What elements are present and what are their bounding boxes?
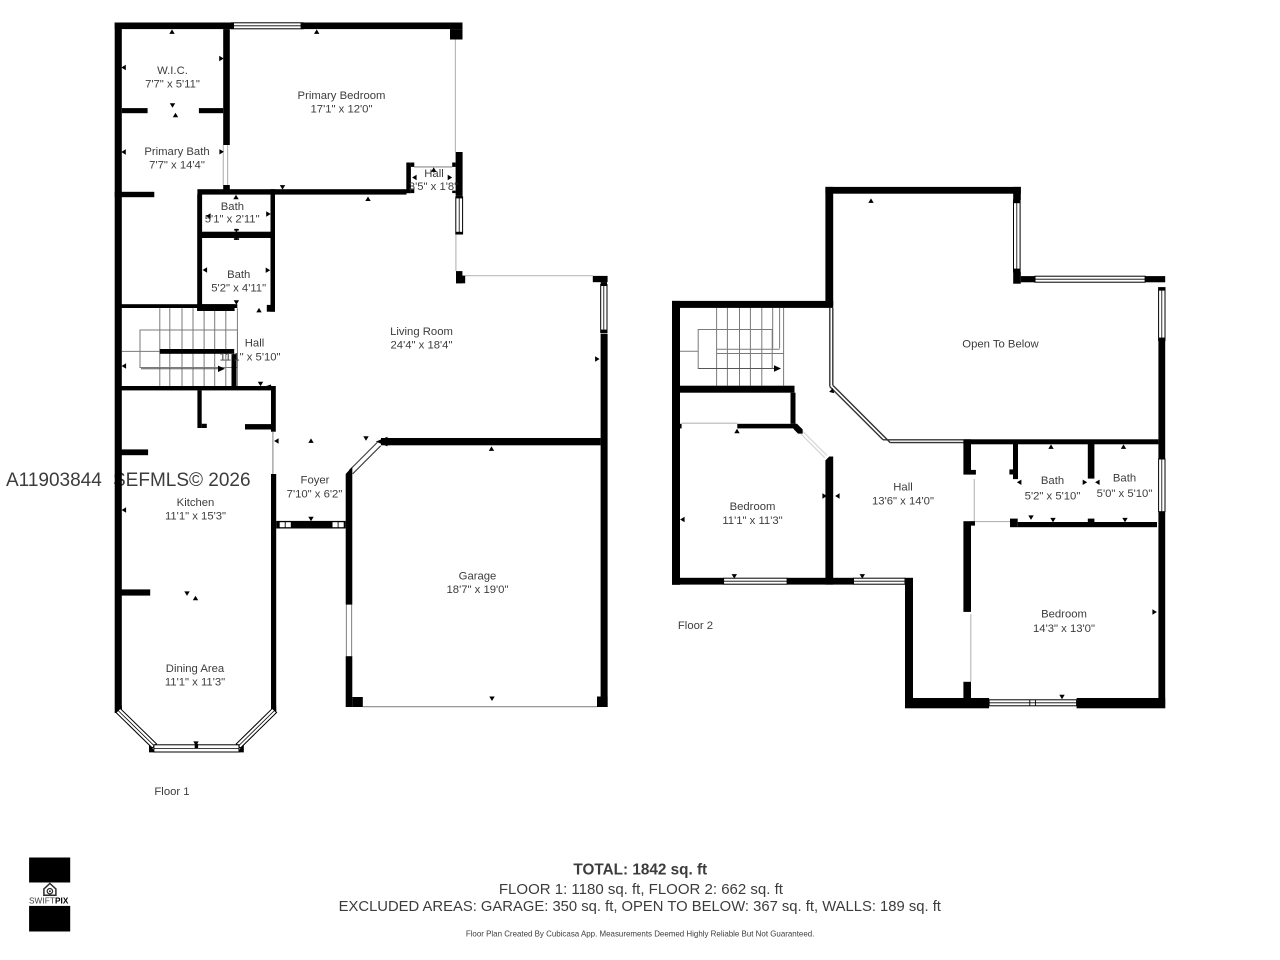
svg-text:11'1" x 15'3": 11'1" x 15'3" xyxy=(165,511,226,523)
svg-text:Bath: Bath xyxy=(221,201,244,213)
svg-text:Primary Bath: Primary Bath xyxy=(144,146,209,158)
svg-text:Bedroom: Bedroom xyxy=(1041,609,1087,621)
svg-text:11'1" x 11'3": 11'1" x 11'3" xyxy=(722,515,782,527)
svg-text:5'1" x 2'11": 5'1" x 2'11" xyxy=(205,214,260,226)
svg-text:Foyer: Foyer xyxy=(301,475,330,487)
svg-text:Primary Bedroom: Primary Bedroom xyxy=(298,90,386,102)
svg-text:Hall: Hall xyxy=(245,338,264,350)
svg-text:Dining Area: Dining Area xyxy=(166,663,225,675)
svg-text:Bath: Bath xyxy=(227,269,250,281)
svg-text:Floor Plan Created By Cubicasa: Floor Plan Created By Cubicasa App. Meas… xyxy=(466,929,815,938)
svg-text:3'5" x 1'8": 3'5" x 1'8" xyxy=(409,181,458,193)
svg-text:A11903844: A11903844 xyxy=(6,470,102,491)
svg-text:Bath: Bath xyxy=(1113,473,1136,485)
svg-text:SEFMLS© 2026: SEFMLS© 2026 xyxy=(113,470,251,491)
svg-text:7'10" x 6'2": 7'10" x 6'2" xyxy=(287,489,343,501)
svg-text:18'7" x 19'0": 18'7" x 19'0" xyxy=(447,584,509,596)
svg-text:5'2" x 4'11": 5'2" x 4'11" xyxy=(211,283,266,295)
svg-text:Bath: Bath xyxy=(1041,475,1064,487)
svg-text:Hall: Hall xyxy=(893,482,912,494)
svg-text:W.I.C.: W.I.C. xyxy=(157,65,188,77)
svg-text:EXCLUDED AREAS: GARAGE: 350 sq: EXCLUDED AREAS: GARAGE: 350 sq. ft, OPEN… xyxy=(339,899,941,915)
svg-text:11'1" x 11'3": 11'1" x 11'3" xyxy=(165,677,225,689)
svg-text:14'3" x 13'0": 14'3" x 13'0" xyxy=(1033,623,1095,635)
svg-text:17'1" x 12'0": 17'1" x 12'0" xyxy=(311,104,373,116)
svg-text:24'4" x 18'4": 24'4" x 18'4" xyxy=(391,340,453,352)
svg-text:FLOOR 1: 1180 sq. ft, FLOOR 2:: FLOOR 1: 1180 sq. ft, FLOOR 2: 662 sq. f… xyxy=(499,881,784,898)
svg-text:7'7" x 14'4": 7'7" x 14'4" xyxy=(149,160,205,172)
svg-text:SWIFTPIX: SWIFTPIX xyxy=(29,897,69,906)
svg-text:Floor 1: Floor 1 xyxy=(154,786,189,798)
svg-text:Floor 2: Floor 2 xyxy=(678,620,713,632)
svg-text:Kitchen: Kitchen xyxy=(177,497,215,509)
svg-text:5'2" x 5'10": 5'2" x 5'10" xyxy=(1025,491,1081,503)
svg-text:Bedroom: Bedroom xyxy=(730,501,776,513)
svg-text:Living Room: Living Room xyxy=(390,326,453,338)
svg-text:11'1" x 5'10": 11'1" x 5'10" xyxy=(219,352,280,364)
svg-text:Open To Below: Open To Below xyxy=(962,339,1039,351)
svg-text:Garage: Garage xyxy=(459,571,497,583)
svg-text:7'7" x 5'11": 7'7" x 5'11" xyxy=(145,79,200,91)
svg-text:13'6" x 14'0": 13'6" x 14'0" xyxy=(872,496,934,508)
svg-text:TOTAL: 1842 sq. ft: TOTAL: 1842 sq. ft xyxy=(573,862,707,879)
svg-text:5'0" x 5'10": 5'0" x 5'10" xyxy=(1097,488,1153,500)
